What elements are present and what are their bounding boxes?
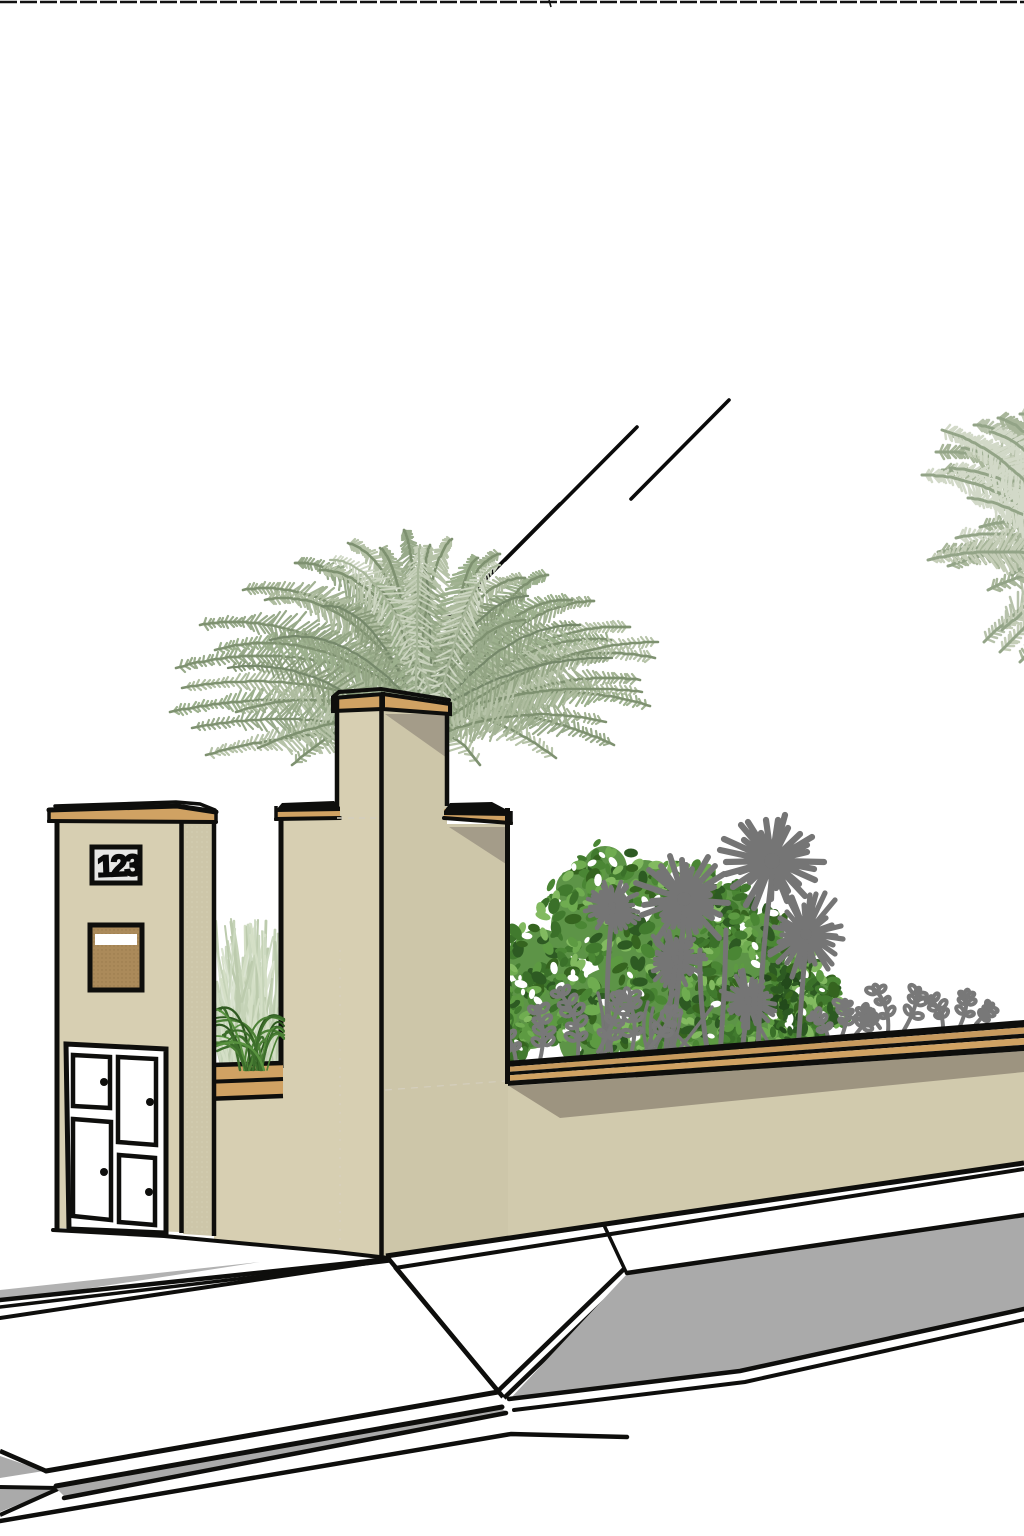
svg-text:123: 123: [96, 849, 140, 883]
